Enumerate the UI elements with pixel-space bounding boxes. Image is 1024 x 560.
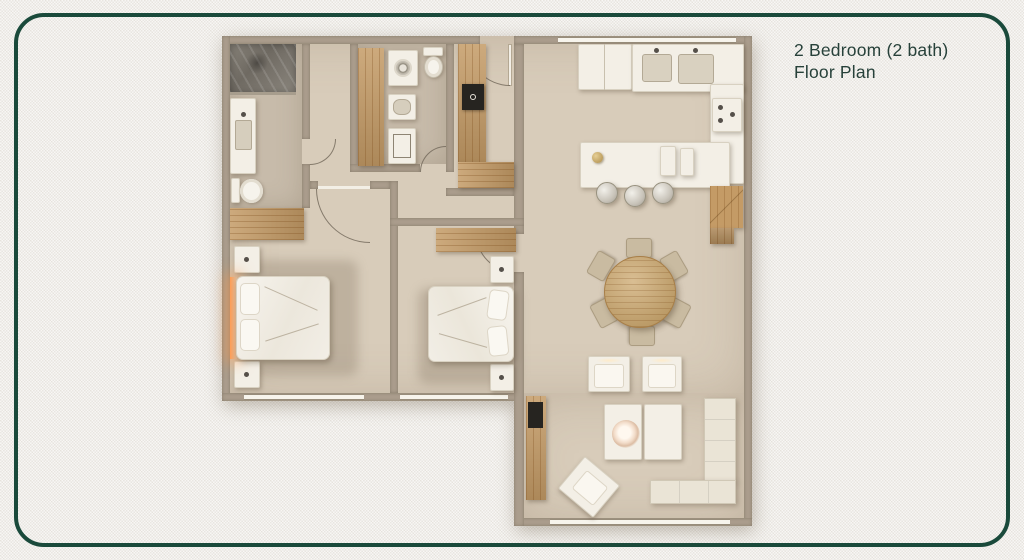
kitchen-sink-left (642, 54, 672, 82)
stove-knob-3 (730, 112, 735, 117)
kitchen-wall-cabinet (710, 186, 743, 228)
armchair-1-seat (594, 364, 624, 388)
kitchen-island (580, 142, 730, 188)
toilet-1-tank (231, 178, 240, 203)
kitchen-sink-right (678, 54, 714, 84)
sectional-sofa-vertical (704, 398, 736, 482)
title-line-1: 2 Bedroom (2 bath) (794, 39, 1009, 61)
fridge (578, 44, 632, 90)
window-kitchen (558, 37, 736, 43)
bedroom-1-nightstand-top-knob (244, 257, 249, 262)
bedroom-1-wardrobe (230, 208, 304, 240)
wall-bathroom-1-right-a (302, 44, 310, 139)
dining-chair-4 (629, 326, 655, 346)
armchair-1-highlight (596, 358, 622, 363)
dining-chair-1 (626, 238, 652, 258)
armchair-2-seat (648, 364, 676, 388)
fridge-door-seam (604, 44, 605, 90)
stove-knob-1 (718, 105, 723, 110)
armchair-2-highlight (650, 358, 674, 363)
washer-door (394, 59, 412, 77)
kitchen-faucet-right (693, 48, 698, 53)
island-board-right (680, 148, 694, 176)
bathroom-2-cabinet-panel (393, 134, 411, 158)
bathroom-2-linen-tower (358, 48, 384, 166)
hall-shelf (458, 162, 514, 188)
table-plant (612, 420, 640, 448)
bar-stool-2 (624, 185, 646, 207)
kitchen-faucet-left (654, 48, 659, 53)
toilet-2-bowl (424, 56, 443, 78)
wall-bedroom-1-top-a (310, 181, 318, 189)
bedroom-2-nightstand-bottom-knob (499, 375, 504, 380)
bedroom-2-shelf (436, 228, 516, 252)
window-living (550, 519, 730, 525)
bed-2-pillow-top (486, 289, 510, 321)
wall-left (222, 36, 230, 401)
toilet-1-bowl (240, 179, 263, 203)
sectional-sofa-horizontal (650, 480, 736, 504)
island-board-left (660, 146, 676, 176)
bed-1-pillow-bottom (240, 319, 260, 351)
bar-stool-3 (652, 182, 674, 204)
stove (712, 98, 742, 132)
island-faucet-gold (592, 152, 603, 163)
wall-entry-column-lower (514, 272, 524, 526)
window-bedroom-1 (244, 394, 364, 400)
wall-bedroom-divider (390, 181, 398, 393)
bedroom-2-nightstand-top-knob (499, 267, 504, 272)
bed-1-pillow-top (240, 283, 260, 315)
wall-entry-column-upper (514, 44, 524, 234)
bedroom-1-nightstand-bottom-knob (244, 372, 249, 377)
wall-pantry-bottom (446, 188, 514, 196)
dining-table (604, 256, 676, 328)
toilet-2-tank (423, 47, 443, 56)
floor-plan (222, 36, 752, 526)
shower-glass-panel (230, 92, 296, 95)
bathroom-2-sink-basin (393, 99, 411, 115)
wall-bedroom-1-top-b (370, 181, 390, 189)
bathroom-1-faucet (241, 112, 246, 117)
bed-2-pillow-bottom (486, 325, 509, 357)
wall-right (744, 36, 752, 526)
kitchen-wall-cabinet-small (710, 228, 734, 244)
wall-bathroom-2-right (446, 44, 454, 172)
wall-bedroom-2-top (390, 218, 524, 226)
stove-knob-2 (718, 118, 723, 123)
tv (528, 402, 543, 428)
page-title: 2 Bedroom (2 bath) Floor Plan (794, 39, 1009, 83)
shower-drain-shadow (246, 52, 268, 74)
wall-bathroom-1-right-b (302, 164, 310, 208)
title-line-2: Floor Plan (794, 61, 1009, 83)
wall-bathroom-2-left (350, 44, 358, 172)
coffee-table-right (644, 404, 682, 460)
window-bedroom-2 (400, 394, 508, 400)
bar-stool-1 (596, 182, 618, 204)
wall-top-left-segment (222, 36, 480, 44)
bathroom-1-sink (235, 120, 252, 150)
electrical-panel-dial (470, 94, 476, 100)
